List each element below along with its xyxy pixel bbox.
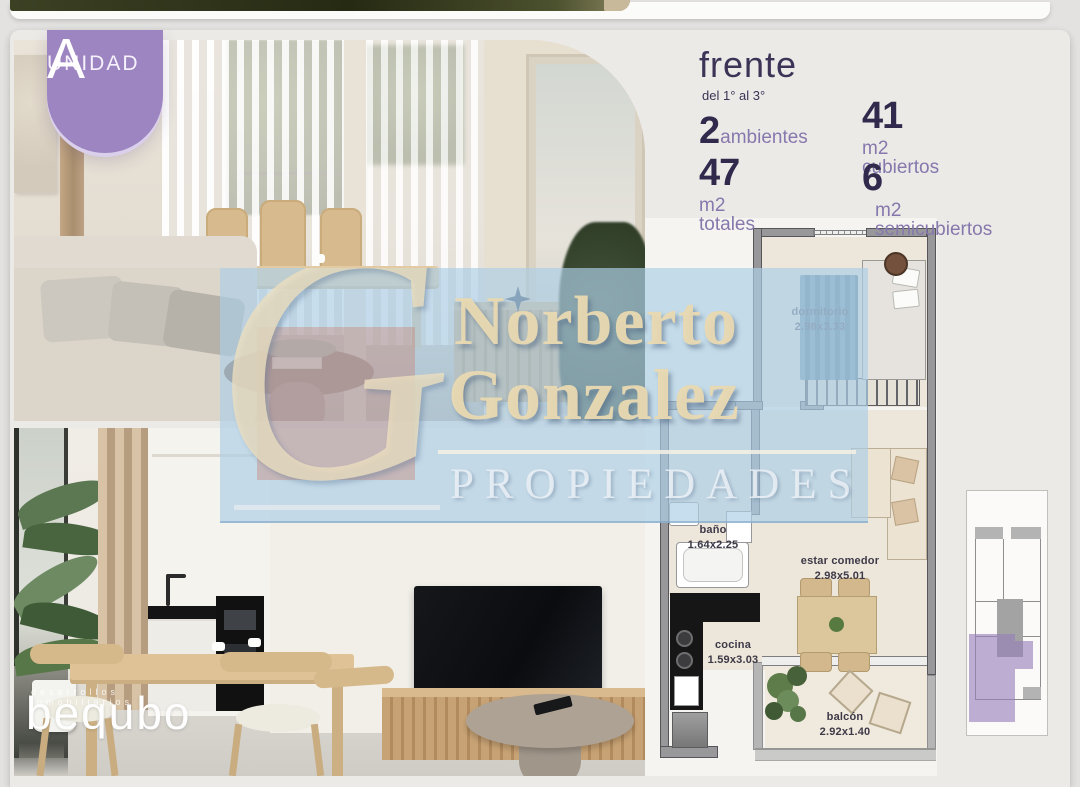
watermark-divider xyxy=(234,505,440,510)
key-plan-wall xyxy=(1023,687,1041,699)
stove-burner xyxy=(676,652,693,669)
oven-window xyxy=(224,610,256,630)
chair-back xyxy=(220,652,332,672)
washing-machine xyxy=(672,712,708,748)
chair-leg xyxy=(229,724,242,776)
dining-chair xyxy=(838,652,870,672)
stat-value: 2 xyxy=(699,110,719,152)
balcony-wall xyxy=(753,662,763,750)
stat-m2-cubiertos: 41 m2 cubiertos xyxy=(862,97,902,135)
previous-page-photo-edge xyxy=(10,0,630,11)
room-label-estar: estar comedor 2.98x5.01 xyxy=(785,554,895,584)
wall xyxy=(927,228,936,675)
unit-badge-letter: A xyxy=(47,30,123,88)
stat-value: 6 xyxy=(862,157,882,199)
watermark-name-line2: Gonzalez xyxy=(448,354,740,437)
key-plan-wall xyxy=(975,527,1003,539)
bathtub-inner xyxy=(683,548,743,582)
balcony-railing xyxy=(755,748,936,761)
stat-label: m2 totales xyxy=(699,196,755,234)
room-dims: 2.98x5.01 xyxy=(785,569,895,584)
room-name: cocina xyxy=(693,638,773,653)
orientation-title: frente xyxy=(699,44,797,86)
watermark-name-line1: Norberto xyxy=(454,282,738,362)
stat-value: 47 xyxy=(699,152,739,194)
room-dims: 2.92x1.40 xyxy=(795,725,895,740)
key-plan-unit-highlight xyxy=(969,634,1015,722)
brochure-page: dormitorio 2.98x3.33 baño 1.64x2.25 coci… xyxy=(0,0,1080,787)
table-plant xyxy=(829,617,844,632)
floors-subtitle: del 1° al 3° xyxy=(702,88,765,103)
stat-m2-totales: 47 m2 totales xyxy=(699,154,739,192)
stove-burner xyxy=(676,630,693,647)
room-name: estar comedor xyxy=(785,554,895,569)
television xyxy=(414,586,602,694)
room-name: baño xyxy=(673,523,753,538)
cup xyxy=(248,638,261,647)
table-leg xyxy=(332,680,343,776)
faucet xyxy=(166,574,186,578)
key-plan-unit-highlight xyxy=(1015,641,1033,669)
balcony-wall xyxy=(927,675,936,753)
watermark-monogram: G xyxy=(220,268,464,523)
key-plan-wall xyxy=(1011,527,1041,539)
faucet xyxy=(166,574,170,606)
balcony-plant xyxy=(765,702,783,720)
room-label-cocina: cocina 1.59x3.03 xyxy=(693,638,773,668)
kitchen-sink xyxy=(674,676,699,706)
cup xyxy=(212,642,225,651)
room-dims: 1.59x3.03 xyxy=(693,653,773,668)
room-label-bano: baño 1.64x2.25 xyxy=(673,523,753,553)
balcony-plant xyxy=(787,666,807,686)
chair-back xyxy=(30,644,124,664)
key-plan xyxy=(966,490,1048,736)
room-label-balcon: balcón 2.92x1.40 xyxy=(795,710,895,740)
stat-label: m2 semicubiertos xyxy=(875,201,992,239)
watermark-divider xyxy=(438,450,856,454)
stat-ambientes: 2ambientes xyxy=(699,112,808,150)
stat-m2-semicubiertos: 6 m2 semicubiertos xyxy=(862,159,882,197)
kitchen-counter xyxy=(670,593,760,622)
watermark-overlay: G Norberto Gonzalez PROPIEDADES xyxy=(220,268,868,523)
stat-label: ambientes xyxy=(720,127,808,148)
unit-a-card: dormitorio 2.98x3.33 baño 1.64x2.25 coci… xyxy=(10,30,1070,787)
pillow xyxy=(892,289,920,310)
room-name: balcón xyxy=(795,710,895,725)
sofa-pillow xyxy=(891,498,919,526)
chair-cushion xyxy=(236,704,320,732)
watermark-name-line3: PROPIEDADES xyxy=(450,460,863,509)
sofa-pillow xyxy=(891,456,919,484)
specs-panel: frente del 1° al 3° 2ambientes 47 m2 tot… xyxy=(10,30,1070,270)
stat-value: 41 xyxy=(862,95,902,137)
room-dims: 1.64x2.25 xyxy=(673,538,753,553)
key-plan-line xyxy=(1040,539,1041,699)
unit-badge: UNIDAD A xyxy=(47,30,163,153)
brand-tagline: desarrollos inmobiliarios xyxy=(26,687,133,707)
